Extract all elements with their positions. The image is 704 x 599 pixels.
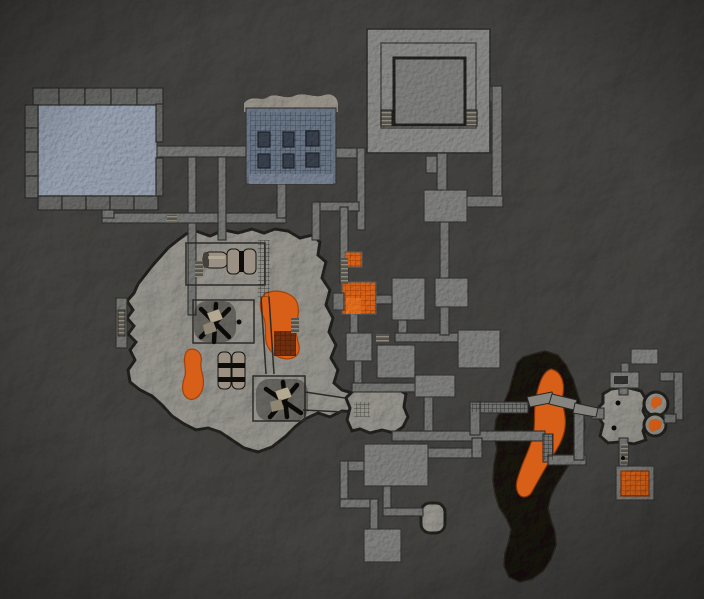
vignette-overlay (0, 0, 704, 599)
dungeon-map-canvas[interactable] (0, 0, 704, 599)
map-viewport (0, 0, 704, 599)
